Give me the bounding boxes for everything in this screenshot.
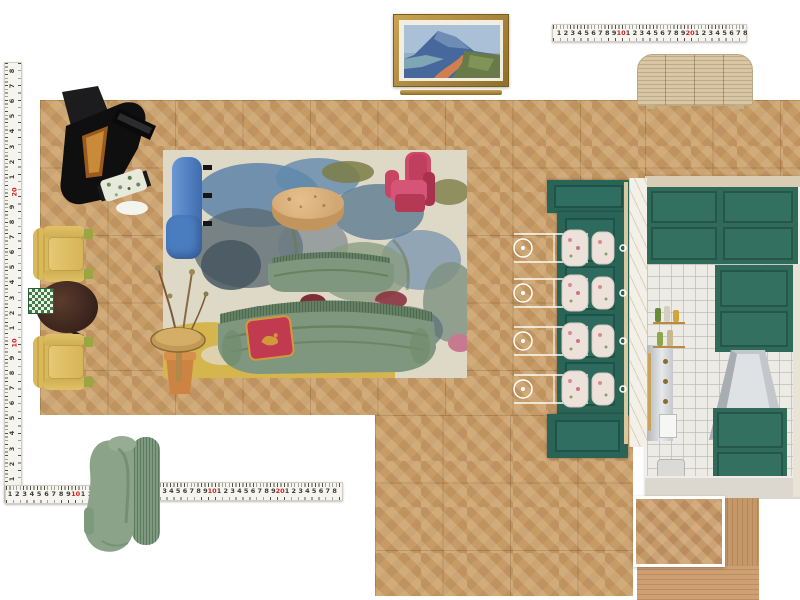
yellow-chair-arm xyxy=(43,378,85,390)
reeded-oak-sideboard[interactable] xyxy=(637,54,753,106)
ruler-number: 2 xyxy=(224,488,229,495)
sage-accent-chair[interactable] xyxy=(82,431,172,555)
ruler-number: 1 xyxy=(626,30,631,37)
ruler-number: 10 xyxy=(617,30,626,37)
ruler-number: 2 xyxy=(9,310,16,315)
design-board: 123456789101234567892012345678 876543212… xyxy=(0,0,800,600)
painting-art xyxy=(404,25,500,78)
cabinet-panel xyxy=(720,311,788,347)
ruler-number: 7 xyxy=(736,30,741,37)
bar-stool-1[interactable] xyxy=(510,226,630,270)
yellow-chair-accent xyxy=(84,377,93,387)
ruler-number: 8 xyxy=(59,491,64,498)
ruler-number: 20 xyxy=(11,187,18,196)
blue-armchair[interactable] xyxy=(166,157,220,259)
kitchen-elevation-photo[interactable] xyxy=(645,176,800,497)
ruler-number: 7 xyxy=(190,488,195,495)
ruler-number: 2 xyxy=(9,159,16,164)
ruler-number: 10 xyxy=(71,491,80,498)
ruler-number: 2 xyxy=(15,491,20,498)
ruler-number: 3 xyxy=(571,30,576,37)
wood-plank-swatch-horizontal[interactable] xyxy=(637,566,759,600)
plant-and-brass-table[interactable] xyxy=(148,260,212,398)
cabinet-panel xyxy=(651,227,717,260)
ruler-number: 6 xyxy=(660,30,665,37)
ruler-number: 9 xyxy=(9,205,16,210)
ruler-number: 5 xyxy=(244,488,249,495)
ruler-number: 7 xyxy=(9,235,16,240)
chessboard[interactable] xyxy=(28,288,54,314)
island-panel xyxy=(554,185,623,208)
ruler-tape-left[interactable]: 87654321209876543211098765432120 xyxy=(4,62,22,502)
ruler-number: 2 xyxy=(564,30,569,37)
framed-landscape-painting[interactable] xyxy=(393,14,509,87)
ruler-number: 6 xyxy=(9,401,16,406)
yellow-armchair-top[interactable] xyxy=(33,226,93,282)
ruler-number: 2 xyxy=(702,30,707,37)
sage-chair-graphic xyxy=(82,431,172,555)
ruler-number: 1 xyxy=(695,30,700,37)
yellow-chair-cushion xyxy=(48,237,84,271)
ruler-number: 1 xyxy=(285,488,290,495)
ruler-number: 2 xyxy=(633,30,638,37)
ruler-number: 6 xyxy=(729,30,734,37)
ruler-number: 6 xyxy=(591,30,596,37)
ruler-number: 1 xyxy=(8,491,13,498)
bar-stool-graphic xyxy=(510,271,630,315)
ruler-number: 7 xyxy=(52,491,57,498)
ruler-number: 6 xyxy=(183,488,188,495)
yellow-chair-cushion xyxy=(48,345,84,379)
cabinet-panel xyxy=(651,191,717,223)
bottle xyxy=(664,306,670,322)
blue-chair-seat xyxy=(166,215,202,259)
bottle xyxy=(657,332,663,346)
ruler-number: 4 xyxy=(715,30,720,37)
ruler-number: 8 xyxy=(264,488,269,495)
bar-stool-graphic xyxy=(510,226,630,270)
ruler-tape-bottom-right[interactable]: 123456789101234567892012345678 xyxy=(145,482,343,501)
ruler-number: 7 xyxy=(258,488,263,495)
yellow-chair-accent xyxy=(84,337,93,347)
ruler-number: 6 xyxy=(9,250,16,255)
plant-graphic xyxy=(148,260,212,398)
shelf-rail xyxy=(653,322,685,324)
ruler-number: 4 xyxy=(577,30,582,37)
ruler-number: 7 xyxy=(9,84,16,89)
ruler-number: 4 xyxy=(646,30,651,37)
bar-stool-graphic xyxy=(510,367,630,411)
ruler-tape-top[interactable]: 123456789101234567892012345678 xyxy=(552,24,747,42)
bottle xyxy=(667,330,673,346)
kitchen-photo-edge xyxy=(645,176,800,187)
yellow-chair-accent xyxy=(84,269,93,279)
ruler-number: 4 xyxy=(9,280,16,285)
ruler-number: 3 xyxy=(9,144,16,149)
red-gold-pillow[interactable] xyxy=(245,314,296,361)
yellow-armchair-bottom[interactable] xyxy=(33,334,93,390)
range-handle xyxy=(648,353,651,431)
blue-chair-leg xyxy=(203,193,212,198)
ruler-number: 4 xyxy=(305,488,310,495)
ruler-number: 8 xyxy=(605,30,610,37)
ruler-number: 3 xyxy=(709,30,714,37)
floor-parquet-top-right[interactable] xyxy=(645,100,800,178)
ruler-number: 1 xyxy=(9,174,16,179)
ruler-number: 5 xyxy=(584,30,589,37)
bar-stool-4[interactable] xyxy=(510,367,630,411)
ruler-number: 8 xyxy=(9,371,16,376)
ruler-number: 5 xyxy=(37,491,42,498)
herringbone-floor-swatch[interactable] xyxy=(633,496,725,567)
ruler-number: 3 xyxy=(298,488,303,495)
ruler-number: 5 xyxy=(312,488,317,495)
ruler-number: 4 xyxy=(237,488,242,495)
ruler-number: 9 xyxy=(66,491,71,498)
brass-shelf xyxy=(653,304,685,350)
grand-piano-graphic xyxy=(48,86,160,216)
bar-stool-3[interactable] xyxy=(510,319,630,363)
ruler-number: 8 xyxy=(332,488,337,495)
range-knob xyxy=(663,359,668,364)
cabinet-panel xyxy=(717,412,783,448)
blue-chair-leg xyxy=(203,165,212,170)
range-knob xyxy=(663,379,668,384)
ruler-number: 4 xyxy=(30,491,35,498)
ruler-number: 20 xyxy=(686,30,695,37)
island-cap-bottom[interactable] xyxy=(547,414,628,458)
ruler-number: 5 xyxy=(9,265,16,270)
grand-piano[interactable] xyxy=(48,86,160,216)
ruler-number: 5 xyxy=(9,416,16,421)
ruler-number: 1 xyxy=(9,325,16,330)
ruler-number: 3 xyxy=(9,446,16,451)
ruler-number: 3 xyxy=(22,491,27,498)
ruler-number: 5 xyxy=(9,114,16,119)
ruler-number: 5 xyxy=(722,30,727,37)
ruler-number: 8 xyxy=(9,220,16,225)
ruler-number: 2 xyxy=(9,461,16,466)
bar-stool-2[interactable] xyxy=(510,271,630,315)
picture-ledge[interactable] xyxy=(400,90,502,95)
bottle xyxy=(673,310,679,322)
ruler-number: 1 xyxy=(217,488,222,495)
shelf-rail xyxy=(653,346,685,348)
ruler-number: 1 xyxy=(9,476,16,481)
ruler-number: 2 xyxy=(292,488,297,495)
ruler-number: 3 xyxy=(230,488,235,495)
ruler-number: 3 xyxy=(640,30,645,37)
ruler-number: 6 xyxy=(251,488,256,495)
ruler-number: 7 xyxy=(598,30,603,37)
range-knob xyxy=(663,399,668,404)
ruler-number: 5 xyxy=(653,30,658,37)
ruler-number: 1 xyxy=(557,30,562,37)
ruler-number: 8 xyxy=(674,30,679,37)
island-panel xyxy=(555,420,620,452)
cabinet-panel xyxy=(723,191,793,223)
cabinet-panel xyxy=(720,270,788,307)
ruler-number: 5 xyxy=(176,488,181,495)
bar-stool-graphic xyxy=(510,319,630,363)
ruler-number: 6 xyxy=(319,488,324,495)
island-cap-top[interactable] xyxy=(547,180,630,213)
blue-chair-leg xyxy=(203,221,212,226)
ruler-number: 20 xyxy=(276,488,285,495)
sideboard-foot xyxy=(646,104,655,109)
island-marble-counter[interactable] xyxy=(629,178,647,447)
ruler-number: 6 xyxy=(44,491,49,498)
pink-sculptural-armchair[interactable] xyxy=(383,150,437,214)
yellow-chair-accent xyxy=(84,229,93,239)
ruler-number: 8 xyxy=(196,488,201,495)
bottle xyxy=(655,308,661,322)
burl-table-top xyxy=(272,187,344,219)
pillow-motif xyxy=(247,317,293,360)
ruler-number: 8 xyxy=(9,69,16,74)
ruler-number: 7 xyxy=(9,386,16,391)
wall-outlet xyxy=(659,414,677,438)
ruler-number: 7 xyxy=(326,488,331,495)
ruler-number: 9 xyxy=(9,356,16,361)
ruler-number: 4 xyxy=(9,431,16,436)
ruler-number: 8 xyxy=(743,30,748,37)
ruler-number: 10 xyxy=(11,338,18,347)
sideboard-foot xyxy=(735,104,744,109)
ruler-number: 10 xyxy=(208,488,217,495)
ruler-number: 7 xyxy=(667,30,672,37)
cabinet-panel xyxy=(723,227,793,260)
burl-drum-coffee-table[interactable] xyxy=(272,187,344,231)
pink-chair-graphic xyxy=(383,150,437,214)
ruler-number: 6 xyxy=(9,99,16,104)
ruler-number: 4 xyxy=(9,129,16,134)
kitchen-photo-right-edge xyxy=(793,264,800,497)
ruler-number: 3 xyxy=(9,295,16,300)
